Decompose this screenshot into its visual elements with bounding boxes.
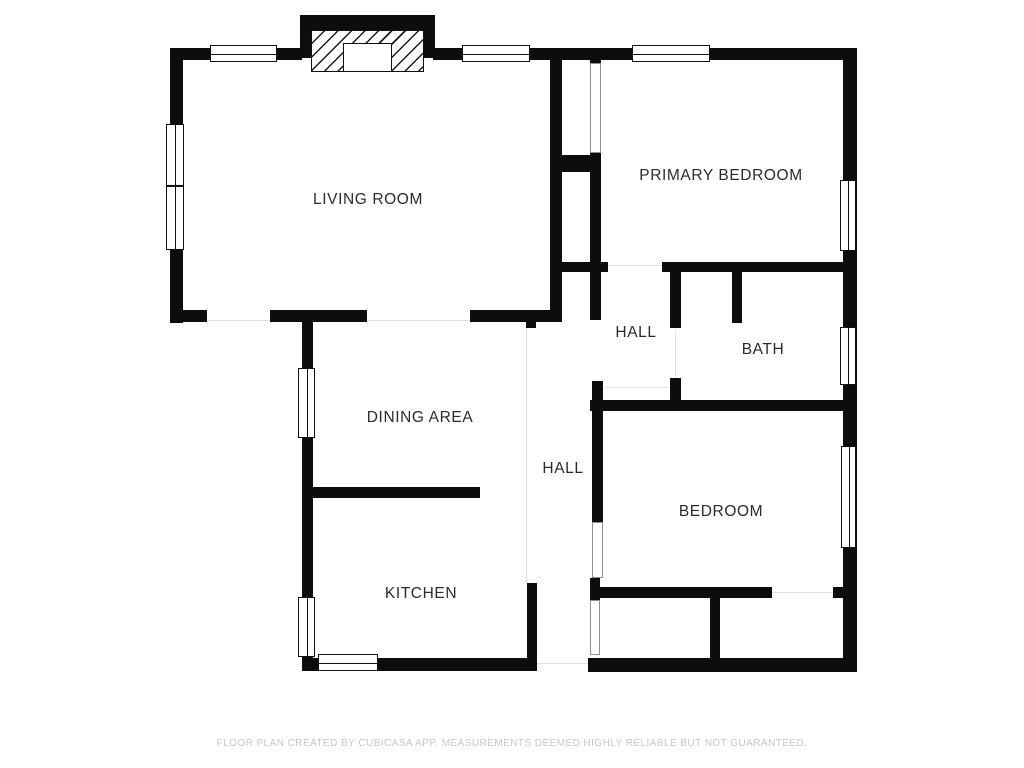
- kitchen-east-wall: [527, 583, 537, 658]
- window-bedroom-right: [841, 446, 856, 548]
- window-kitchen-bottom: [318, 654, 378, 671]
- dining-kitchen-divider: [313, 487, 480, 498]
- window-living-left-lower: [166, 186, 184, 250]
- disclaimer-text: FLOOR PLAN CREATED BY CUBICASA APP. MEAS…: [0, 738, 1024, 749]
- primary-west-wall: [590, 153, 601, 320]
- fireplace-side-left: [300, 15, 311, 58]
- room-label-kitchen: KITCHEN: [385, 585, 457, 603]
- bedroom-south-wall: [600, 587, 772, 598]
- window-dining-left: [298, 368, 315, 438]
- living-bottom-wall-c: [470, 310, 562, 322]
- primary-door-opening: [608, 265, 662, 266]
- open-plan-divider: [526, 328, 527, 583]
- bath-west-stub: [670, 378, 681, 402]
- back-door-opening: [537, 663, 588, 664]
- window-living-top-right: [462, 45, 530, 62]
- window-primary-right: [840, 180, 856, 251]
- room-label-dining-area: DINING AREA: [367, 409, 474, 427]
- closet-divider-wall: [710, 598, 720, 658]
- closet-door-opening: [772, 592, 833, 593]
- living-east-wall: [550, 60, 562, 322]
- bedroom-west-stub: [590, 578, 600, 600]
- living-dining-opening: [367, 320, 470, 321]
- bath-door-opening: [675, 330, 676, 378]
- exterior-bottom-wall-right: [588, 658, 857, 672]
- hall-corner-stub: [526, 322, 536, 328]
- hall-closet-door: [590, 600, 600, 655]
- bath-south-wall: [590, 400, 857, 411]
- primary-south-wall: [662, 262, 843, 272]
- window-kitchen-left: [298, 597, 315, 657]
- room-label-bedroom: BEDROOM: [679, 503, 763, 521]
- room-label-living-room: LIVING ROOM: [313, 191, 423, 209]
- floor-plan-canvas: LIVING ROOMPRIMARY BEDROOMHALLBATHDINING…: [0, 0, 1024, 768]
- room-label-hall-upper: HALL: [615, 324, 656, 342]
- fireplace-top: [300, 15, 435, 30]
- room-label-primary-bedroom: PRIMARY BEDROOM: [639, 167, 802, 185]
- floor-plan-page: LIVING ROOMPRIMARY BEDROOMHALLBATHDINING…: [0, 0, 1024, 768]
- room-label-bath: BATH: [742, 341, 785, 359]
- bedroom-south-wall-right: [833, 587, 857, 598]
- bath-west-wall-upper: [670, 272, 681, 328]
- living-bottom-wall-a: [170, 310, 207, 322]
- window-living-top-left: [210, 45, 277, 62]
- bedroom-west-wall: [592, 381, 603, 522]
- bedroom-door: [592, 522, 603, 578]
- fireplace-firebox: [343, 43, 392, 72]
- bath-inner-stub: [732, 272, 742, 323]
- primary-closet-door: [590, 63, 601, 153]
- fireplace-side-right: [424, 15, 435, 58]
- hall-north-wall: [562, 262, 608, 272]
- hall-niche-opening: [605, 387, 668, 388]
- window-primary-top: [632, 45, 710, 62]
- front-door-opening: [207, 320, 270, 321]
- living-bottom-wall-b: [270, 310, 367, 322]
- window-living-left-upper: [166, 124, 184, 186]
- window-bath-right: [840, 327, 856, 385]
- room-label-hall-lower: HALL: [542, 460, 583, 478]
